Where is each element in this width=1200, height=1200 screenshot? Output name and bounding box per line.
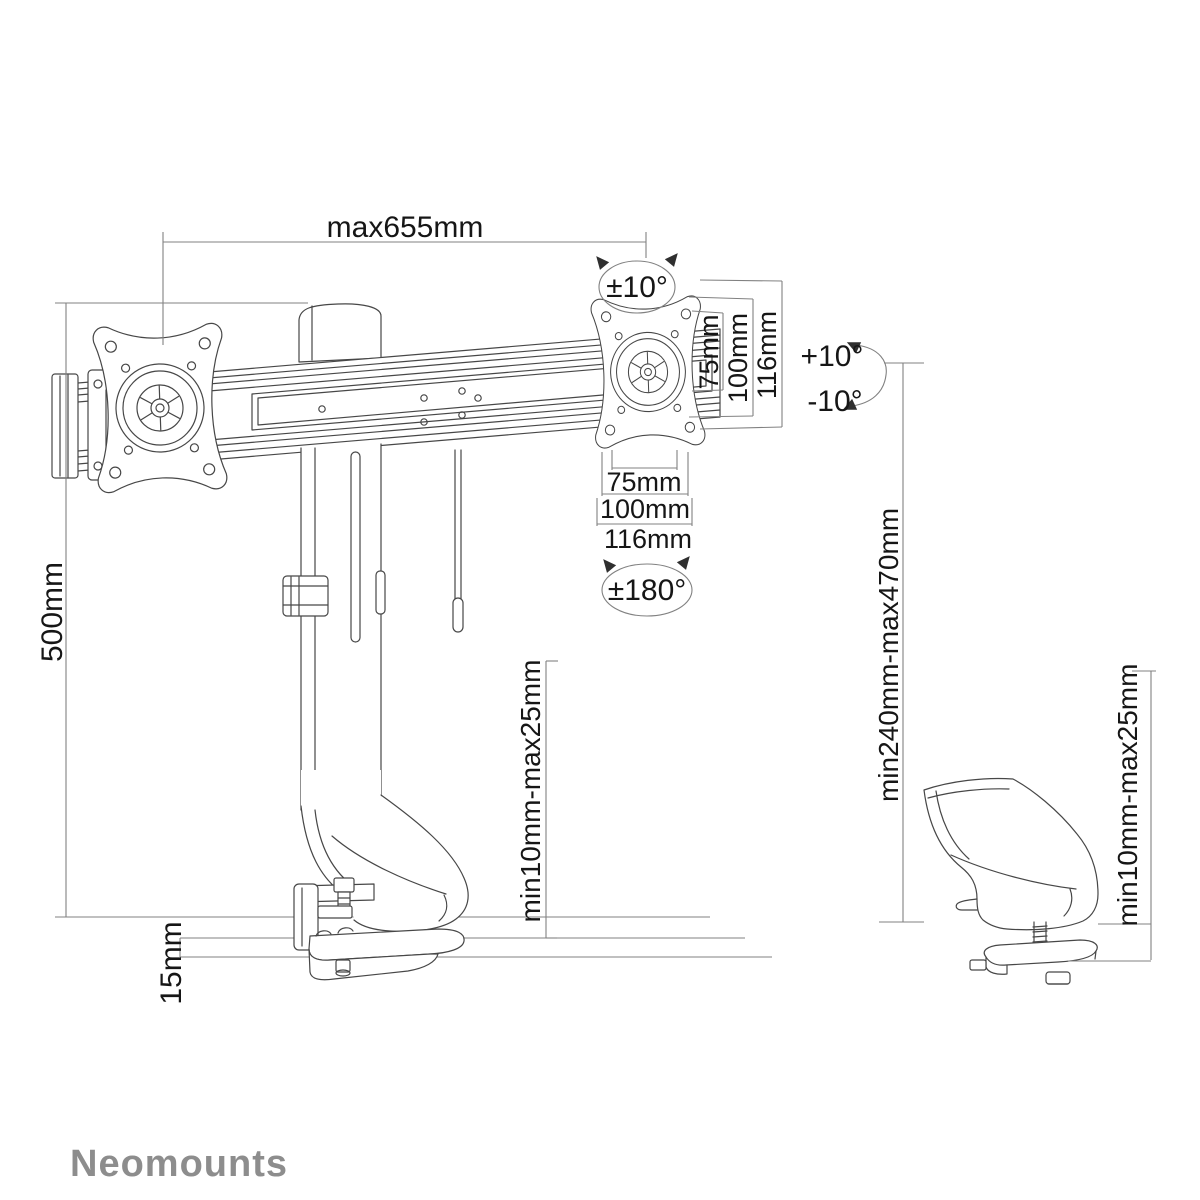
pole-cap [299, 304, 381, 362]
pole-height-label: 500mm [36, 562, 69, 662]
desk-clamp-range-label: min10mm-max25mm [515, 660, 546, 923]
pole-body [283, 444, 385, 814]
vesa-plate-left [93, 323, 227, 493]
swivel-label: ±180° [608, 574, 687, 607]
monitor-mount-technical-diagram: max655mm ±10° 75mm 100mm 116mm +10° -10°… [0, 0, 1200, 1200]
vesa-plate-right [591, 296, 706, 449]
tilt-down-label: -10° [807, 385, 862, 418]
slider-rod [453, 450, 463, 632]
max-width-label: max655mm [327, 211, 484, 244]
vesa-horizontal-100-label: 100mm [600, 494, 690, 524]
vesa-horizontal-75-label: 75mm [606, 467, 681, 497]
brand-logo: Neomounts [70, 1143, 288, 1185]
clamp-detail-drawing [924, 778, 1098, 984]
desk-clamp-range-dimension [546, 661, 558, 938]
vesa-vertical-116-label: 116mm [752, 311, 782, 399]
desk-clamp-range-detail-label: min10mm-max25mm [1112, 664, 1143, 927]
base-plate-height-label: 15mm [155, 921, 188, 1004]
vesa-vertical-75-label: 75mm [694, 314, 724, 389]
base-plate-height-dimension-lines [180, 938, 772, 957]
vesa-horizontal-116-label: 116mm [604, 524, 692, 554]
tilt-up-label: +10° [801, 340, 864, 373]
max-width-dimension [163, 232, 646, 345]
rotation-label: ±10° [606, 271, 668, 304]
height-range-label: min240mm-max470mm [873, 508, 904, 802]
vesa-vertical-100-label: 100mm [723, 313, 753, 403]
